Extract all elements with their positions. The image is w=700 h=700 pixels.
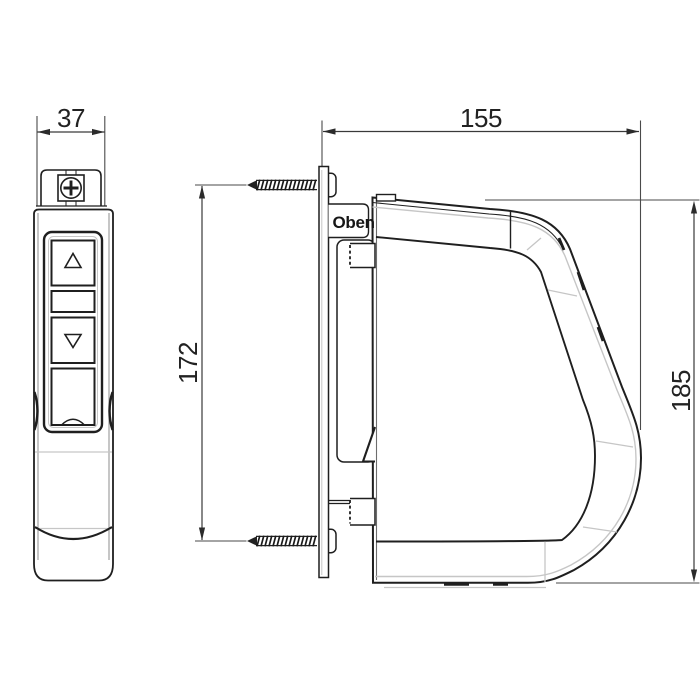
arrow-up-icon — [691, 201, 697, 214]
bracket-arm-bottom — [329, 501, 351, 504]
mounting-plate — [319, 167, 329, 578]
top-tab — [377, 195, 396, 202]
dim-label-screw-spacing: 172 — [173, 342, 203, 384]
winder-side-view: Oben — [247, 167, 641, 588]
arrow-up-icon — [199, 186, 205, 199]
dim-label-winder-width: 155 — [460, 103, 502, 133]
mounting-clip-bottom — [350, 499, 375, 526]
dimension-drawing-canvas: 37 155 — [0, 0, 700, 700]
mounting-screw-top — [247, 180, 317, 191]
up-button[interactable] — [52, 241, 95, 286]
dim-label-winder-height: 185 — [666, 370, 696, 412]
battery-cover — [52, 369, 95, 426]
arrow-left-icon — [37, 129, 50, 135]
technical-drawing: 37 155 — [0, 0, 700, 700]
mounting-screw-bottom — [247, 536, 317, 547]
arrow-left-icon — [323, 128, 336, 134]
arrow-right-icon — [627, 128, 640, 134]
down-button[interactable] — [52, 318, 95, 364]
mounting-clip-top — [350, 244, 375, 268]
arrow-right-icon — [92, 129, 105, 135]
arrow-down-icon — [691, 570, 697, 583]
belt-outlet — [337, 240, 375, 462]
housing-outline — [373, 198, 642, 583]
arrow-down-icon — [199, 528, 205, 541]
orientation-label: Oben — [333, 213, 375, 232]
dim-label-remote-width: 37 — [57, 103, 85, 133]
stop-button[interactable] — [52, 291, 95, 312]
dimension-screw-spacing: 172 — [173, 185, 247, 541]
remote-front-view — [34, 170, 113, 581]
